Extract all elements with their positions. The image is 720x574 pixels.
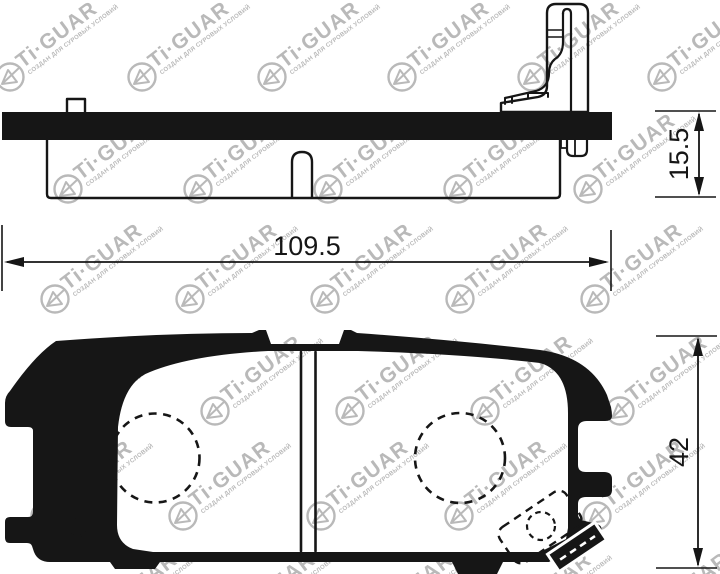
plate-tab xyxy=(67,99,85,112)
watermark-brand-text: Ti·GUAR xyxy=(57,219,147,295)
arrowhead-left xyxy=(4,257,24,267)
watermark-logo-glyph xyxy=(654,67,672,84)
watermark-logo-glyph xyxy=(450,179,468,196)
watermark-logo-glyph xyxy=(451,506,469,523)
watermark-logo-glyph xyxy=(207,401,225,418)
watermark: Ti·GUARСОЗДАН ДЛЯ СУРОВЫХ УСЛОВИЙ xyxy=(259,0,382,91)
clip-lower-lug xyxy=(567,140,587,156)
watermark-logo-glyph xyxy=(589,506,607,523)
watermark-logo-glyph xyxy=(587,289,605,306)
thickness-value: 15.5 xyxy=(664,128,694,181)
watermark-brand-text: Ti·GUAR xyxy=(144,0,234,73)
watermark-brand-text: Ti·GUAR xyxy=(192,219,282,295)
watermark-logo-glyph xyxy=(317,289,335,306)
technical-drawing-page: Ti·GUARСОЗДАН ДЛЯ СУРОВЫХ УСЛОВИЙTi·GUAR… xyxy=(0,0,720,574)
watermark-logo-glyph xyxy=(477,401,495,418)
watermark: Ti·GUARСОЗДАН ДЛЯ СУРОВЫХ УСЛОВИЙ xyxy=(447,208,570,313)
center-groove xyxy=(292,152,312,197)
watermark-logo-glyph xyxy=(612,401,630,418)
arrowhead-down xyxy=(694,177,704,196)
watermark-brand-text: Ti·GUAR xyxy=(274,0,364,73)
watermark: Ti·GUARСОЗДАН ДЛЯ СУРОВЫХ УСЛОВИЙ xyxy=(129,0,252,91)
sensor-hole-circle xyxy=(527,512,555,540)
watermark-logo-glyph xyxy=(175,506,193,523)
watermark-brand-text: Ti·GUAR xyxy=(644,548,720,574)
watermark: Ti·GUARСОЗДАН ДЛЯ СУРОВЫХ УСЛОВИЙ xyxy=(446,425,569,530)
watermark-logo-glyph xyxy=(342,401,360,418)
backing-plate-bar xyxy=(2,112,612,140)
watermark-brand-text: Ti·GUAR xyxy=(461,436,551,512)
watermark-brand-text: Ti·GUAR xyxy=(12,0,102,73)
watermark: Ti·GUARСОЗДАН ДЛЯ СУРОВЫХ УСЛОВИЙ xyxy=(308,425,431,530)
watermark: Ti·GUARСОЗДАН ДЛЯ СУРОВЫХ УСЛОВИЙ xyxy=(0,0,120,91)
watermark-logo-glyph xyxy=(394,67,412,84)
watermark-logo-glyph xyxy=(524,67,542,84)
watermark-logo-glyph xyxy=(60,179,78,196)
watermark: Ti·GUARСОЗДАН ДЛЯ СУРОВЫХ УСЛОВИЙ xyxy=(389,0,512,91)
watermark-logo-glyph xyxy=(190,179,208,196)
watermark-logo-glyph xyxy=(580,179,598,196)
watermark-logo-glyph xyxy=(182,289,200,306)
watermark-logo-glyph xyxy=(320,179,338,196)
watermark-brand-text: Ti·GUAR xyxy=(404,0,494,73)
watermark: Ti·GUARСОЗДАН ДЛЯ СУРОВЫХ УСЛОВИЙ xyxy=(42,208,165,313)
height-value: 42 xyxy=(664,437,694,467)
watermark: Ti·GUARСОЗДАН ДЛЯ СУРОВЫХ УСЛОВИЙ xyxy=(519,0,642,91)
watermark-logo-glyph xyxy=(134,67,152,84)
watermark-brand-text: Ti·GUAR xyxy=(323,436,413,512)
watermark-logo-glyph xyxy=(47,289,65,306)
watermark-logo-glyph xyxy=(264,67,282,84)
piston-circle-right xyxy=(415,413,505,503)
watermark-logo-glyph xyxy=(452,289,470,306)
drawing-canvas: Ti·GUARСОЗДАН ДЛЯ СУРОВЫХ УСЛОВИЙTi·GUAR… xyxy=(0,0,720,574)
watermark: Ti·GUARСОЗДАН ДЛЯ СУРОВЫХ УСЛОВИЙ xyxy=(170,425,293,530)
watermark-logo-glyph xyxy=(2,67,20,84)
watermark: Ti·GUARСОЗДАН ДЛЯ СУРОВЫХ УСЛОВИЙ xyxy=(649,0,720,91)
watermark-brand-text: Ti·GUAR xyxy=(462,219,552,295)
arrowhead-right xyxy=(589,257,609,267)
length-value: 109.5 xyxy=(273,231,341,261)
